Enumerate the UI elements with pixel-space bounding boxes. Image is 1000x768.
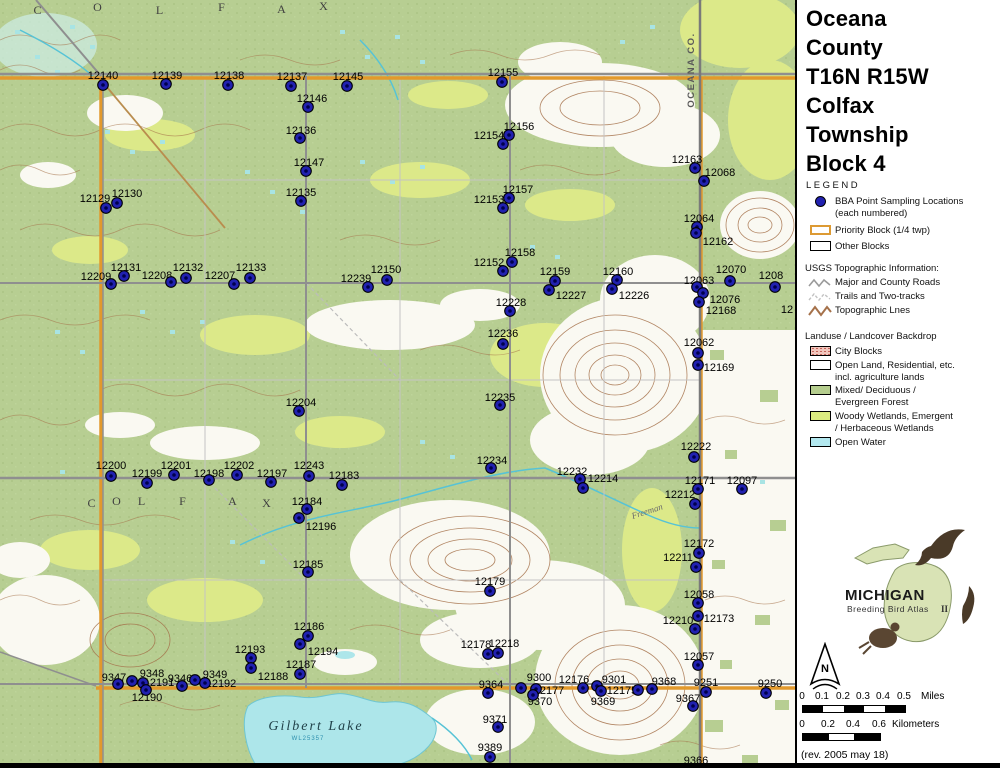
bba-point-dot-core bbox=[581, 686, 585, 690]
bba-point-dot-core bbox=[306, 105, 310, 109]
legend-label: Mixed/ Deciduous / bbox=[835, 385, 916, 396]
bba-point-dot-core bbox=[501, 206, 505, 210]
township-letter: O bbox=[93, 0, 103, 14]
scale-tick: 0.1 bbox=[815, 691, 829, 702]
bba-point-label: 12222 bbox=[681, 441, 712, 453]
legend-label: Other Blocks bbox=[835, 241, 889, 253]
bba-point-dot-core bbox=[486, 652, 490, 656]
county-line-label: OCEANA CO. bbox=[686, 32, 697, 107]
bba-point-label: 12070 bbox=[716, 264, 747, 276]
michigan-upper-peninsula bbox=[855, 544, 909, 564]
mbba-logo: MICHIGAN Breeding Bird Atlas II bbox=[843, 520, 998, 667]
bba-point-dot-core bbox=[696, 601, 700, 605]
bba-point-label: 12173 bbox=[704, 613, 735, 625]
bba-point-dot-core bbox=[696, 614, 700, 618]
bba-point-dot-core bbox=[692, 455, 696, 459]
bba-point-dot-core bbox=[104, 206, 108, 210]
bba-point-label: 12068 bbox=[705, 167, 736, 179]
legend-item-priority-block: Priority Block (1/4 twp) bbox=[805, 225, 930, 237]
title-line: Oceana bbox=[806, 4, 929, 33]
scale-tick: 0 bbox=[799, 691, 805, 702]
bba-point-dot-core bbox=[740, 487, 744, 491]
bba-point-dot-core bbox=[728, 279, 732, 283]
legend-label: Topographic Lnes bbox=[835, 305, 910, 317]
grouse-icon bbox=[869, 628, 897, 648]
scale-tick: 0 bbox=[799, 719, 805, 730]
legend-panel: Oceana County T16N R15W Colfax Township … bbox=[795, 0, 1000, 768]
township-letter: X bbox=[319, 0, 329, 13]
bba-point-dot-core bbox=[704, 690, 708, 694]
bba-point-dot-core bbox=[122, 274, 126, 278]
bba-point-label: 12211 bbox=[663, 552, 693, 564]
bba-point-dot-core bbox=[297, 409, 301, 413]
township-letter: O bbox=[112, 494, 122, 508]
bba-point-dot-core bbox=[207, 478, 211, 482]
bba-point-dot-core bbox=[193, 678, 197, 682]
mbba-logo-graphic: MICHIGAN Breeding Bird Atlas II bbox=[843, 520, 998, 662]
bba-point-dot-core bbox=[507, 196, 511, 200]
map-area: OCEANA CO.COLFAXCOLFAXGilbert LakeWL2535… bbox=[0, 0, 795, 768]
title-line: Block 4 bbox=[806, 149, 929, 178]
bba-point-dot-core bbox=[345, 84, 349, 88]
bba-point-dot-core bbox=[693, 627, 697, 631]
bba-point-dot-core bbox=[773, 285, 777, 289]
bba-point-dot-core bbox=[306, 634, 310, 638]
bba-point-dot-core bbox=[507, 133, 511, 137]
bba-point-label: 12227 bbox=[556, 290, 587, 302]
bba-point-dot-core bbox=[501, 269, 505, 273]
legend-item-mixed-forest: Mixed/ Deciduous / Evergreen Forest bbox=[805, 385, 916, 408]
bba-point-dot-core bbox=[145, 481, 149, 485]
bba-point-dot-core bbox=[249, 656, 253, 660]
bba-point-dot-core bbox=[203, 681, 207, 685]
open-water-swatch bbox=[810, 437, 831, 447]
legend-item-open-land: Open Land, Residential, etc. incl. agric… bbox=[805, 360, 955, 383]
legend-label: Open Water bbox=[835, 437, 886, 449]
legend-item-roads: Major and County Roads bbox=[805, 277, 940, 289]
bba-point-label: 12132 bbox=[173, 262, 204, 274]
bba-point-dot-core bbox=[130, 679, 134, 683]
bba-point-dot-core bbox=[115, 201, 119, 205]
bba-point-dot-core bbox=[696, 363, 700, 367]
bba-point-dot-core bbox=[693, 166, 697, 170]
bba-point-dot-core bbox=[694, 231, 698, 235]
bba-point-dot-core bbox=[486, 691, 490, 695]
bba-point-dot-core bbox=[164, 82, 168, 86]
township-letter: C bbox=[33, 3, 42, 17]
legend-item-other-blocks: Other Blocks bbox=[805, 241, 889, 253]
township-letter: L bbox=[138, 494, 146, 508]
bba-point-dot-core bbox=[696, 351, 700, 355]
bba-point-dot-core bbox=[116, 682, 120, 686]
township-letter: X bbox=[262, 496, 272, 510]
bba-point-dot-core bbox=[298, 672, 302, 676]
bba-point-label: 12169 bbox=[704, 362, 735, 374]
bba-point-dot-core bbox=[650, 687, 654, 691]
legend-item-trails: Trails and Two-tracks bbox=[805, 291, 925, 303]
bba-point-label: 12133 bbox=[236, 262, 267, 274]
bba-point-dot-core bbox=[696, 487, 700, 491]
woody-wetlands-swatch bbox=[810, 411, 831, 421]
other-blocks-swatch bbox=[810, 241, 831, 251]
bba-point-dot-core bbox=[488, 755, 492, 759]
bba-point-dot-core bbox=[307, 474, 311, 478]
bba-point-dot-core bbox=[610, 287, 614, 291]
bba-point-dot-core bbox=[701, 291, 705, 295]
township-letter: F bbox=[218, 0, 226, 14]
bba-point-dot-core bbox=[306, 570, 310, 574]
bba-point-dot-core bbox=[305, 507, 309, 511]
bba-point-dot-core bbox=[531, 693, 535, 697]
scale-tick: 0.2 bbox=[821, 719, 835, 730]
legend-item-city-blocks: City Blocks bbox=[805, 346, 882, 358]
perched-falcon-icon bbox=[962, 586, 974, 624]
township-letter: C bbox=[87, 496, 96, 510]
bba-point-dot-core bbox=[184, 276, 188, 280]
legend-item-topo-lines: Topographic Lnes bbox=[805, 305, 910, 317]
scale-tick: 0.2 bbox=[836, 691, 850, 702]
bba-point-dot-core bbox=[498, 403, 502, 407]
legend-label: Trails and Two-tracks bbox=[835, 291, 925, 303]
bba-point-label: 12210 bbox=[663, 615, 694, 627]
scale-unit: Kilometers bbox=[892, 719, 939, 730]
title-line: Colfax bbox=[806, 91, 929, 120]
legend-item-bba-points: BBA Point Sampling Locations (each numbe… bbox=[805, 196, 963, 219]
mixed-forest-swatch bbox=[810, 385, 831, 395]
bba-point-label: 9250 bbox=[758, 678, 782, 690]
bba-point-dot-core bbox=[764, 691, 768, 695]
bba-point-dot-core bbox=[697, 551, 701, 555]
bba-point-label: 9300 bbox=[527, 672, 551, 684]
bba-point-dot-core bbox=[702, 179, 706, 183]
bba-point-dot-core bbox=[172, 473, 176, 477]
bba-point-label: 12162 bbox=[703, 236, 734, 248]
legend-label: Woody Wetlands, Emergent bbox=[835, 411, 953, 422]
landuse-heading: Landuse / Landcover Backdrop bbox=[805, 331, 937, 342]
bba-point-label: 12062 bbox=[684, 337, 715, 349]
km-scale-bar bbox=[802, 733, 881, 741]
logo-subtitle: Breeding Bird Atlas bbox=[847, 604, 929, 614]
bba-point-label: 9369 bbox=[591, 696, 615, 708]
bba-point-dot-core bbox=[693, 502, 697, 506]
title-line: T16N R15W bbox=[806, 62, 929, 91]
legend-label: incl. agriculture lands bbox=[835, 372, 924, 383]
legend-label: Priority Block (1/4 twp) bbox=[835, 225, 930, 237]
bba-point-label: 12226 bbox=[619, 290, 650, 302]
bba-point-dot-core bbox=[615, 278, 619, 282]
bba-point-label: 12194 bbox=[308, 646, 339, 658]
miles-scale-bar bbox=[802, 705, 906, 713]
bba-point-label: 12196 bbox=[306, 521, 337, 533]
legend-label: BBA Point Sampling Locations bbox=[835, 196, 963, 207]
bba-point-dot-core bbox=[695, 285, 699, 289]
bba-point-dot-core bbox=[501, 142, 505, 146]
bba-point-dot-core bbox=[691, 704, 695, 708]
bba-point-dot-core bbox=[385, 278, 389, 282]
bba-point-dot-core bbox=[519, 686, 523, 690]
bba-point-dot-core bbox=[578, 477, 582, 481]
km-scale-labels: 0 0.2 0.4 0.6 Kilometers bbox=[797, 719, 1000, 730]
road-line-icon bbox=[808, 277, 832, 289]
bba-point-dot-core bbox=[226, 83, 230, 87]
bba-point-dot-core bbox=[109, 474, 113, 478]
bba-point-dot-core bbox=[298, 642, 302, 646]
bba-point-dot-core bbox=[141, 681, 145, 685]
township-letter: L bbox=[156, 3, 164, 17]
bba-point-dot-core bbox=[232, 282, 236, 286]
bba-point-dot-core bbox=[547, 288, 551, 292]
bba-point-dot-core bbox=[500, 80, 504, 84]
bba-point-dot-core bbox=[299, 199, 303, 203]
bba-point-label: 12214 bbox=[588, 473, 619, 485]
bba-point-dot-core bbox=[496, 725, 500, 729]
bba-point-dot-core bbox=[694, 565, 698, 569]
legend-label: Open Land, Residential, etc. bbox=[835, 360, 955, 371]
logo-title: MICHIGAN bbox=[845, 587, 925, 604]
bba-point-dot-core bbox=[488, 589, 492, 593]
legend-label: / Herbaceous Wetlands bbox=[835, 423, 934, 434]
bba-point-dot-core bbox=[304, 169, 308, 173]
bba-point-dot-core bbox=[180, 684, 184, 688]
legend-label: (each numbered) bbox=[835, 208, 907, 219]
township-letter: F bbox=[179, 494, 187, 508]
legend-heading: LEGEND bbox=[806, 180, 860, 191]
trail-line-icon bbox=[808, 291, 832, 303]
priority-block-swatch bbox=[810, 225, 831, 235]
bba-point-dot-core bbox=[599, 689, 603, 693]
bba-point-dot-core bbox=[109, 282, 113, 286]
bba-point-dot-core bbox=[508, 309, 512, 313]
township-letter: A bbox=[277, 2, 287, 16]
bba-point-dot-core bbox=[510, 260, 514, 264]
map-svg: OCEANA CO.COLFAXCOLFAXGilbert LakeWL2535… bbox=[0, 0, 795, 768]
legend-label: City Blocks bbox=[835, 346, 882, 358]
legend-label: Major and County Roads bbox=[835, 277, 940, 289]
bba-point-label: 12150 bbox=[371, 264, 402, 276]
bba-point-dot-core bbox=[249, 666, 253, 670]
bba-point-dot-core bbox=[298, 136, 302, 140]
topo-line-icon bbox=[808, 305, 832, 317]
bba-point-dot-core bbox=[101, 83, 105, 87]
logo-edition: II bbox=[941, 604, 949, 614]
lake-label: Gilbert Lake bbox=[268, 719, 363, 734]
bba-point-dot-core bbox=[235, 473, 239, 477]
bba-point-dot-core bbox=[489, 466, 493, 470]
flying-hawk-icon bbox=[915, 529, 965, 565]
title-line: County bbox=[806, 33, 929, 62]
page: OCEANA CO.COLFAXCOLFAXGilbert LakeWL2535… bbox=[0, 0, 1000, 768]
legend-item-woody-wetlands: Woody Wetlands, Emergent / Herbaceous We… bbox=[805, 411, 953, 434]
legend-item-open-water: Open Water bbox=[805, 437, 886, 449]
scale-tick: 0.5 bbox=[897, 691, 911, 702]
bba-point-dot-core bbox=[366, 285, 370, 289]
north-arrow: N bbox=[809, 642, 841, 697]
scale-tick: 0.4 bbox=[876, 691, 890, 702]
legend-label: Evergreen Forest bbox=[835, 397, 908, 408]
bba-point-legend-icon bbox=[815, 196, 826, 207]
bba-point-dot-core bbox=[269, 480, 273, 484]
scale-tick: 0.4 bbox=[846, 719, 860, 730]
bottom-border bbox=[0, 763, 1000, 768]
bba-point-label: 12188 bbox=[258, 671, 289, 683]
bba-point-dot-core bbox=[501, 342, 505, 346]
bba-point-dot-core bbox=[340, 483, 344, 487]
north-label: N bbox=[821, 663, 829, 675]
bba-point-dot-core bbox=[581, 486, 585, 490]
bba-point-dot-core bbox=[496, 651, 500, 655]
north-arrow-icon: N bbox=[809, 642, 841, 692]
bba-point-dot-core bbox=[289, 84, 293, 88]
usgs-heading: USGS Topographic Information: bbox=[805, 263, 939, 274]
bba-point-dot-core bbox=[697, 300, 701, 304]
bba-point-label: 1208 bbox=[759, 270, 783, 282]
scale-tick: 0.3 bbox=[856, 691, 870, 702]
lake-sublabel: WL25357 bbox=[292, 736, 325, 742]
clipped-point-label: 12 bbox=[781, 304, 793, 316]
scale-tick: 0.6 bbox=[872, 719, 886, 730]
bba-point-dot-core bbox=[248, 276, 252, 280]
bba-point-label: 12212 bbox=[665, 489, 696, 501]
scale-unit: Miles bbox=[921, 691, 944, 702]
bba-point-dot-core bbox=[553, 279, 557, 283]
map-title: Oceana County T16N R15W Colfax Township … bbox=[806, 4, 929, 178]
bba-point-dot-core bbox=[169, 280, 173, 284]
bba-point-dot-core bbox=[696, 663, 700, 667]
bba-point-label: 12218 bbox=[489, 638, 520, 650]
revision-note: (rev. 2005 may 18) bbox=[801, 749, 888, 761]
bba-point-dot-core bbox=[144, 688, 148, 692]
open-land-swatch bbox=[810, 360, 831, 370]
title-line: Township bbox=[806, 120, 929, 149]
bba-point-dot-core bbox=[636, 688, 640, 692]
bba-point-dot-core bbox=[297, 516, 301, 520]
miles-scale-labels: 0 0.1 0.2 0.3 0.4 0.5 Miles bbox=[797, 691, 1000, 702]
township-letter: A bbox=[228, 494, 238, 508]
bba-point-label: 12168 bbox=[706, 305, 737, 317]
city-blocks-swatch bbox=[810, 346, 831, 356]
